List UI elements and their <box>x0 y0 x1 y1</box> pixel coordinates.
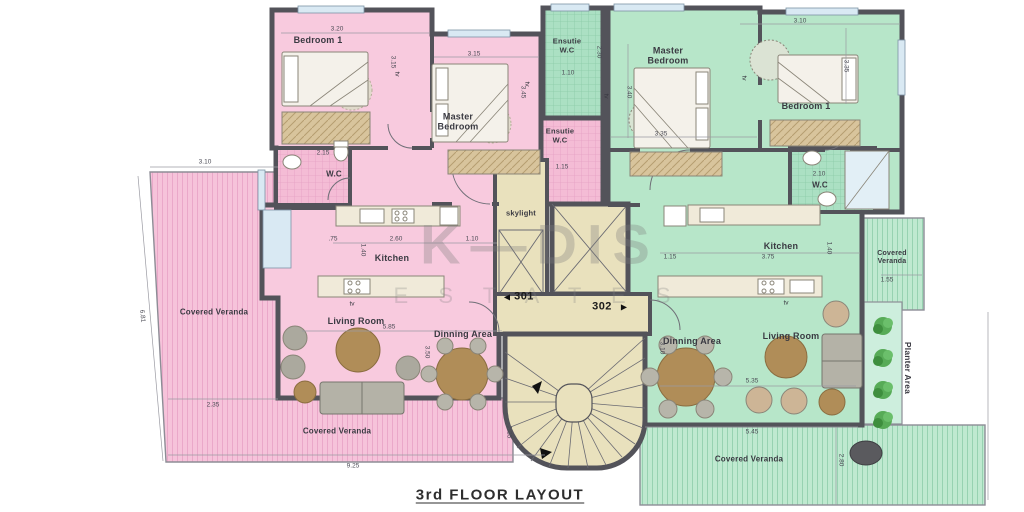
sink-icon <box>283 155 301 169</box>
toilet-icon <box>818 192 836 206</box>
kitchen-sink-icon <box>790 280 814 293</box>
kitchen-sink-icon <box>360 209 384 223</box>
veranda-302-lower-area <box>640 425 985 505</box>
round-table-icon <box>336 328 380 372</box>
kitchen-sink-icon <box>700 208 724 222</box>
armchair-icon <box>823 301 849 327</box>
armchair-icon <box>283 326 307 350</box>
side-table-icon <box>294 381 316 403</box>
glass-closet-icon <box>263 210 291 268</box>
dining-table-icon <box>436 348 488 400</box>
window-icon <box>614 4 684 11</box>
armchair-icon <box>746 387 772 413</box>
pillow-icon <box>842 58 856 100</box>
window-icon <box>786 8 858 15</box>
side-table-icon <box>819 389 845 415</box>
pillow-icon <box>696 72 708 104</box>
wardrobe-icon <box>630 152 722 176</box>
wardrobe-icon <box>448 150 540 174</box>
watermark-brand: K—DIS <box>420 212 660 277</box>
window-icon <box>298 6 364 13</box>
sink-icon <box>803 151 821 165</box>
veranda-table-icon <box>850 441 882 465</box>
pillow-icon <box>284 56 298 102</box>
stove-icon <box>392 209 414 223</box>
dining-table-icon <box>657 348 715 406</box>
toilet-tank-icon <box>334 141 348 147</box>
pillow-icon <box>436 68 448 100</box>
stair-newel <box>556 384 592 422</box>
watermark-subtitle: E S T A T E S <box>394 283 683 309</box>
window-icon <box>898 40 905 95</box>
armchair-icon <box>281 355 305 379</box>
fridge-icon <box>664 206 686 226</box>
round-table-icon <box>765 336 807 378</box>
pillow-icon <box>436 104 448 136</box>
pillow-icon <box>696 108 708 140</box>
armchair-icon <box>781 388 807 414</box>
wardrobe-icon <box>770 120 860 146</box>
armchair-icon <box>396 356 420 380</box>
wardrobe-icon <box>282 112 370 144</box>
page-title: 3rd FLOOR LAYOUT <box>416 487 584 504</box>
window-icon <box>448 30 510 37</box>
floor-plan: K—DIS E S T A T E S Bedroom 1Master Bedr… <box>0 0 1024 512</box>
ensuite-wc-301-area <box>541 118 603 204</box>
window-icon <box>258 170 265 210</box>
veranda-302-upper-area <box>858 218 924 310</box>
window-icon <box>551 4 589 11</box>
ensuite-wc-302-area <box>543 8 603 118</box>
